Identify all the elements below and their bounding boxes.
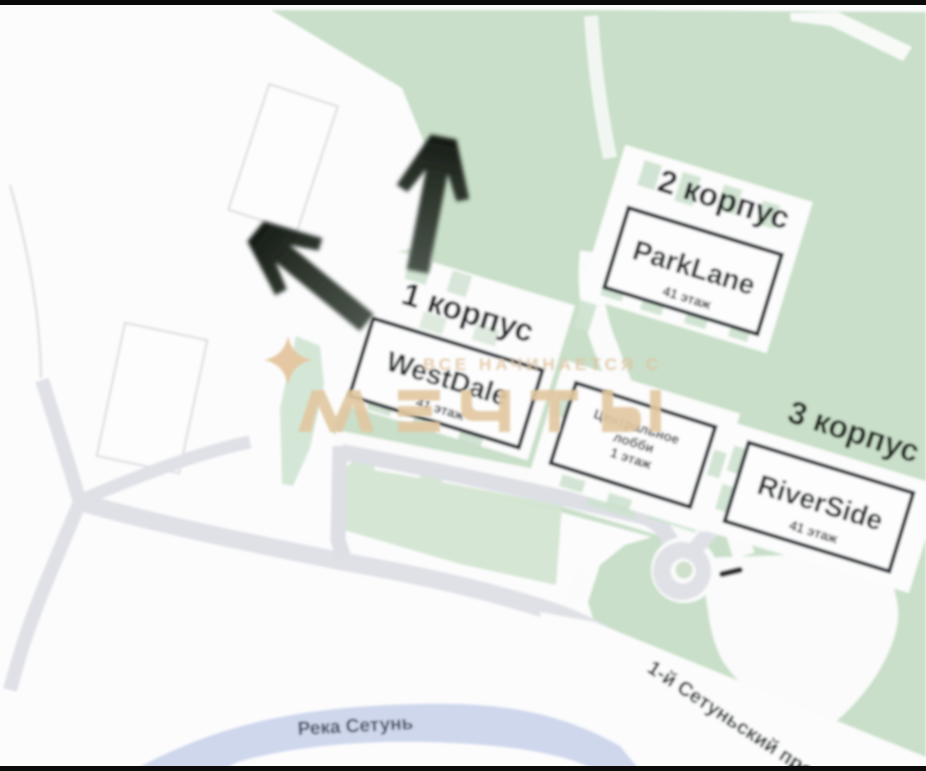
svg-text:ВСЕ НАЧИНАЕТСЯ С: ВСЕ НАЧИНАЕТСЯ С bbox=[423, 355, 662, 374]
